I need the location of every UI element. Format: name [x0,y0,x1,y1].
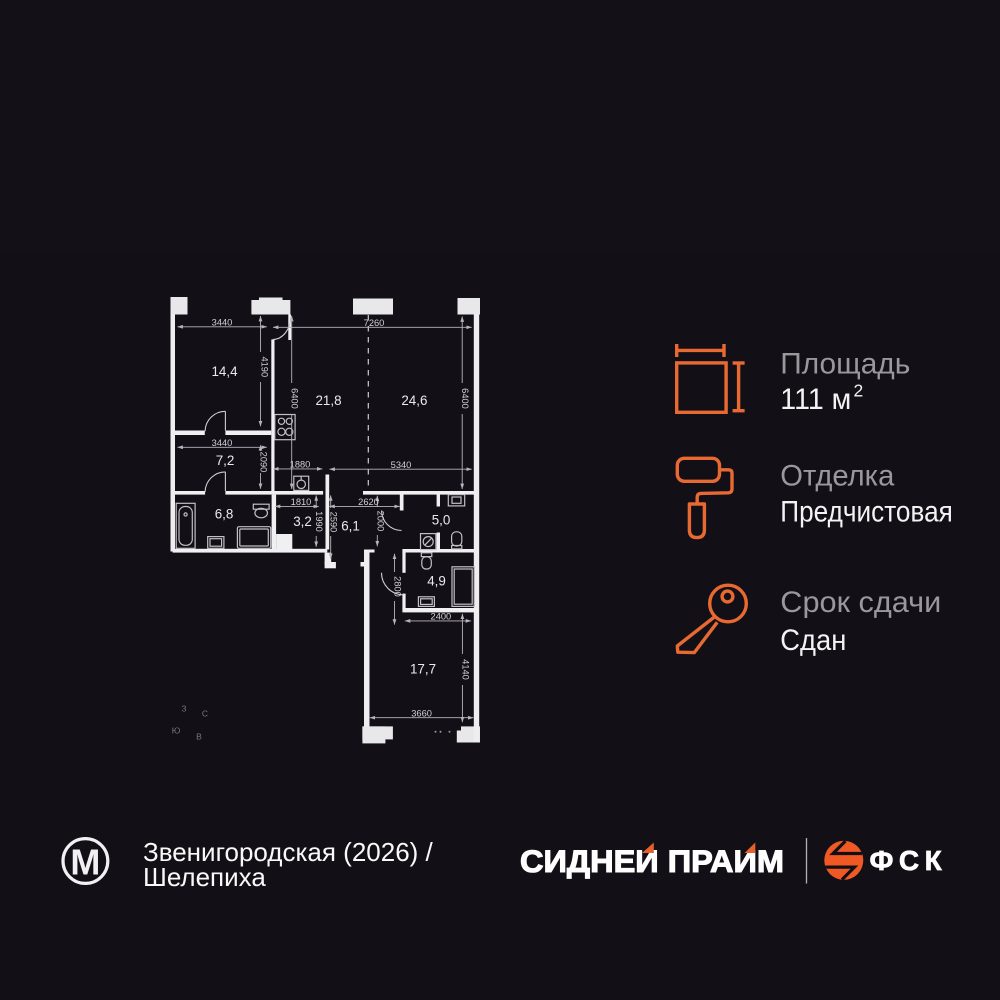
svg-text:5340: 5340 [391,460,412,470]
svg-text:Сдан: Сдан [780,624,846,657]
svg-text:В: В [196,732,202,742]
svg-text:2: 2 [854,381,864,401]
svg-text:Шелепиха: Шелепиха [143,862,266,892]
svg-text:7260: 7260 [364,318,385,328]
svg-text:1880: 1880 [290,460,311,470]
svg-text:2590: 2590 [329,512,339,533]
svg-text:Ю: Ю [172,726,181,736]
svg-text:3,2: 3,2 [293,514,312,529]
svg-text:4,9: 4,9 [427,574,446,589]
svg-text:ФСК: ФСК [870,845,948,876]
svg-text:Срок сдачи: Срок сдачи [780,586,941,619]
svg-text:С: С [202,709,208,719]
svg-text:4140: 4140 [460,659,470,680]
svg-text:6,8: 6,8 [215,507,234,522]
svg-text:24,6: 24,6 [401,393,427,408]
svg-text:6400: 6400 [290,388,300,409]
svg-text:Предчистовая: Предчистовая [780,495,953,528]
svg-text:17,7: 17,7 [410,662,436,677]
svg-text:2090: 2090 [259,452,269,473]
svg-text:21,8: 21,8 [315,393,341,408]
svg-text:2000: 2000 [375,511,385,532]
svg-text:2800: 2800 [393,576,403,597]
svg-text:111 м: 111 м [780,383,851,416]
svg-text:7,2: 7,2 [216,453,235,468]
svg-text:Площадь: Площадь [780,347,910,380]
svg-text:З: З [181,704,186,714]
svg-text:6,1: 6,1 [341,519,360,534]
svg-text:М: М [70,842,100,883]
svg-text:2400: 2400 [431,612,452,622]
svg-text:14,4: 14,4 [211,364,238,379]
svg-text:3660: 3660 [411,708,432,718]
svg-text:2620: 2620 [358,497,379,507]
svg-text:4190: 4190 [259,356,269,377]
svg-text:1810: 1810 [291,497,312,507]
svg-text:3440: 3440 [212,318,233,328]
svg-text:1990: 1990 [314,511,324,532]
svg-text:5,0: 5,0 [432,513,451,528]
svg-text:Отделка: Отделка [780,460,894,493]
svg-text:6400: 6400 [460,388,470,409]
svg-text:3440: 3440 [212,438,233,448]
